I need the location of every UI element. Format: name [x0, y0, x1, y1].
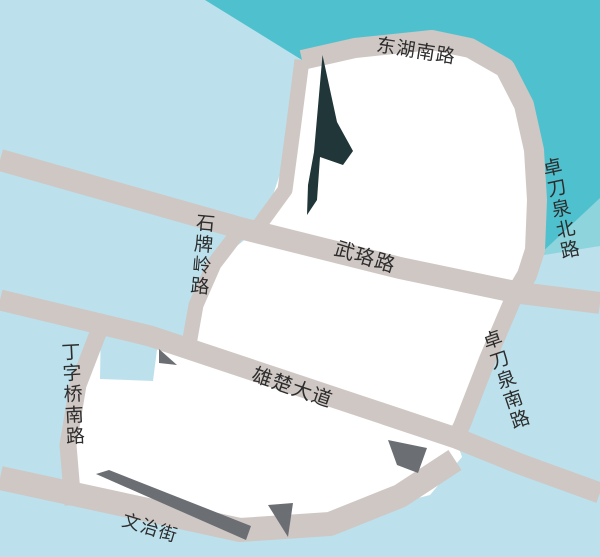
map-svg [0, 0, 600, 557]
map-canvas[interactable]: 东湖南路 卓刀泉北路 武珞路 石牌岭路 丁字桥南路 雄楚大道 卓刀泉南路 文治街 [0, 0, 600, 557]
road-label-dingziqiao-south: 丁字桥南路 [58, 341, 83, 447]
